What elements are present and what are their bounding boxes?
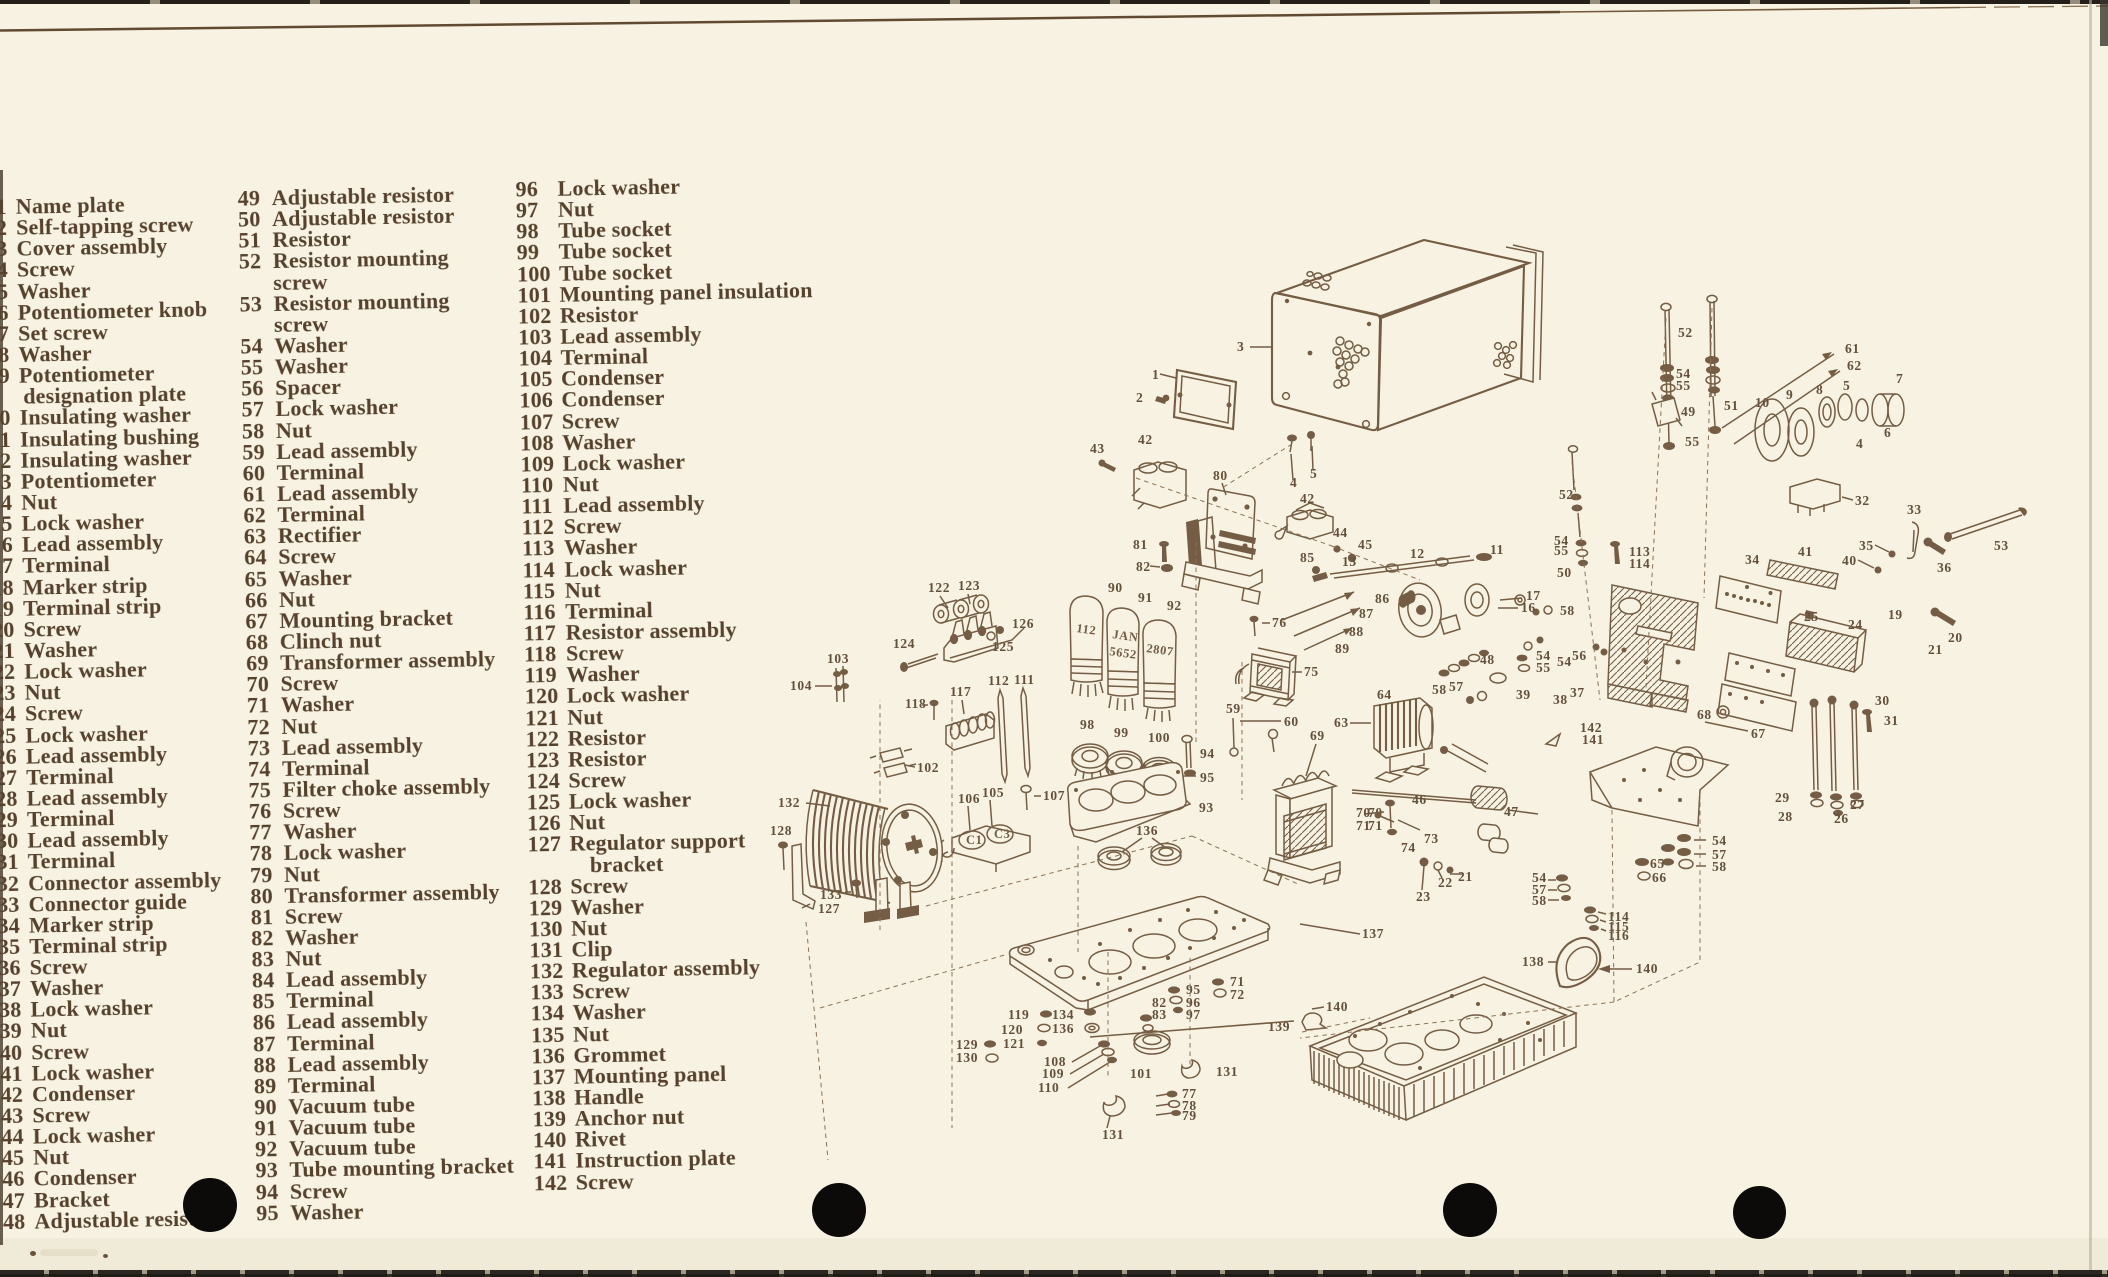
svg-text:64: 64 xyxy=(1377,687,1392,702)
svg-text:75: 75 xyxy=(1304,664,1319,679)
svg-text:12: 12 xyxy=(1410,546,1425,561)
svg-text:5: 5 xyxy=(1310,466,1317,481)
svg-text:2: 2 xyxy=(1136,390,1143,405)
svg-text:46: 46 xyxy=(1412,792,1427,807)
svg-text:60: 60 xyxy=(1284,714,1299,729)
svg-text:112: 112 xyxy=(1076,621,1098,638)
svg-text:141: 141 xyxy=(1582,732,1604,747)
svg-text:49: 49 xyxy=(1681,404,1696,419)
svg-text:16: 16 xyxy=(1521,600,1536,615)
svg-text:55: 55 xyxy=(1685,434,1700,449)
svg-text:110: 110 xyxy=(1038,1080,1059,1095)
svg-text:61: 61 xyxy=(1845,341,1860,356)
svg-text:34: 34 xyxy=(1745,552,1760,567)
svg-text:21: 21 xyxy=(1458,869,1473,884)
svg-text:79: 79 xyxy=(1182,1108,1197,1123)
svg-text:137: 137 xyxy=(1362,926,1384,941)
svg-text:29: 29 xyxy=(1775,790,1790,805)
svg-text:50: 50 xyxy=(1557,565,1572,580)
svg-text:71: 71 xyxy=(1356,818,1371,833)
svg-text:55: 55 xyxy=(1554,543,1569,558)
svg-text:36: 36 xyxy=(1937,560,1952,575)
svg-text:67: 67 xyxy=(1751,726,1766,741)
svg-text:56: 56 xyxy=(1572,648,1587,663)
svg-text:122: 122 xyxy=(928,580,950,595)
svg-text:119: 119 xyxy=(1008,1007,1029,1022)
svg-text:28: 28 xyxy=(1778,809,1793,824)
svg-text:11: 11 xyxy=(1490,542,1504,557)
svg-text:48: 48 xyxy=(1480,652,1495,667)
svg-text:121: 121 xyxy=(1003,1036,1025,1051)
svg-text:123: 123 xyxy=(958,578,980,593)
svg-text:42: 42 xyxy=(1138,432,1153,447)
svg-text:33: 33 xyxy=(1907,502,1922,517)
svg-text:66: 66 xyxy=(1652,870,1667,885)
svg-text:124: 124 xyxy=(893,636,915,651)
svg-text:44: 44 xyxy=(1333,525,1348,540)
svg-text:86: 86 xyxy=(1375,591,1390,606)
svg-text:105: 105 xyxy=(982,785,1004,800)
svg-text:81: 81 xyxy=(1133,537,1148,552)
svg-text:52: 52 xyxy=(1559,487,1574,502)
svg-text:5: 5 xyxy=(1843,378,1850,393)
svg-text:134: 134 xyxy=(1052,1007,1074,1022)
svg-text:39: 39 xyxy=(1516,687,1531,702)
svg-text:4: 4 xyxy=(1290,475,1297,490)
svg-text:42: 42 xyxy=(1300,491,1315,506)
svg-text:136: 136 xyxy=(1136,823,1158,838)
svg-text:1: 1 xyxy=(1152,367,1159,382)
svg-text:6: 6 xyxy=(1884,425,1891,440)
svg-text:27: 27 xyxy=(1850,797,1865,812)
svg-text:68: 68 xyxy=(1697,707,1712,722)
svg-text:112: 112 xyxy=(988,673,1009,688)
svg-text:54: 54 xyxy=(1712,833,1727,848)
svg-text:98: 98 xyxy=(1080,717,1095,732)
svg-text:57: 57 xyxy=(1449,679,1464,694)
svg-text:30: 30 xyxy=(1875,693,1890,708)
svg-text:118: 118 xyxy=(905,696,926,711)
svg-text:73: 73 xyxy=(1424,831,1439,846)
svg-text:59: 59 xyxy=(1226,701,1241,716)
svg-text:90: 90 xyxy=(1108,580,1123,595)
svg-text:13: 13 xyxy=(1342,554,1357,569)
svg-text:74: 74 xyxy=(1401,840,1416,855)
svg-text:114: 114 xyxy=(1629,556,1650,571)
svg-text:87: 87 xyxy=(1359,606,1374,621)
svg-text:41: 41 xyxy=(1798,544,1813,559)
svg-text:52: 52 xyxy=(1678,325,1693,340)
svg-text:65: 65 xyxy=(1650,856,1665,871)
svg-text:20: 20 xyxy=(1948,630,1963,645)
svg-text:9: 9 xyxy=(1786,387,1793,402)
svg-text:94: 94 xyxy=(1200,746,1215,761)
svg-text:89: 89 xyxy=(1335,641,1350,656)
svg-text:138: 138 xyxy=(1522,954,1544,969)
svg-text:C3: C3 xyxy=(994,827,1010,841)
svg-text:69: 69 xyxy=(1310,728,1325,743)
svg-text:43: 43 xyxy=(1090,441,1105,456)
svg-text:4: 4 xyxy=(1856,436,1863,451)
svg-text:21: 21 xyxy=(1928,642,1943,657)
svg-text:85: 85 xyxy=(1300,550,1315,565)
svg-text:131: 131 xyxy=(1102,1127,1124,1142)
svg-text:99: 99 xyxy=(1114,725,1129,740)
svg-text:127: 127 xyxy=(818,901,840,916)
svg-text:104: 104 xyxy=(790,678,812,693)
svg-text:58: 58 xyxy=(1432,682,1447,697)
svg-text:116: 116 xyxy=(1608,928,1629,943)
svg-text:23: 23 xyxy=(1416,889,1431,904)
svg-text:55: 55 xyxy=(1676,378,1691,393)
svg-text:92: 92 xyxy=(1167,598,1182,613)
svg-text:133: 133 xyxy=(820,887,842,902)
svg-text:109: 109 xyxy=(1042,1066,1064,1081)
svg-text:25: 25 xyxy=(1804,609,1819,624)
svg-text:45: 45 xyxy=(1358,537,1373,552)
svg-text:55: 55 xyxy=(1536,660,1551,675)
svg-text:C1: C1 xyxy=(966,833,982,847)
svg-text:63: 63 xyxy=(1334,715,1349,730)
svg-text:22: 22 xyxy=(1438,875,1453,890)
svg-text:91: 91 xyxy=(1138,590,1153,605)
svg-text:72: 72 xyxy=(1230,987,1245,1002)
svg-text:93: 93 xyxy=(1199,800,1214,815)
svg-text:111: 111 xyxy=(1014,672,1035,687)
svg-text:131: 131 xyxy=(1216,1064,1238,1079)
svg-text:53: 53 xyxy=(1994,538,2009,553)
svg-text:130: 130 xyxy=(956,1050,978,1065)
svg-text:103: 103 xyxy=(827,651,849,666)
svg-text:106: 106 xyxy=(958,791,980,806)
svg-text:24: 24 xyxy=(1848,617,1863,632)
svg-text:62: 62 xyxy=(1847,358,1862,373)
svg-text:100: 100 xyxy=(1148,730,1170,745)
svg-text:120: 120 xyxy=(1001,1022,1023,1037)
svg-text:3: 3 xyxy=(1237,339,1244,354)
svg-text:51: 51 xyxy=(1724,398,1739,413)
svg-text:38: 38 xyxy=(1553,692,1568,707)
svg-text:125: 125 xyxy=(992,639,1014,654)
svg-text:95: 95 xyxy=(1200,770,1215,785)
svg-text:128: 128 xyxy=(770,823,792,838)
svg-text:83: 83 xyxy=(1152,1007,1167,1022)
svg-text:88: 88 xyxy=(1349,624,1364,639)
svg-text:26: 26 xyxy=(1834,811,1849,826)
svg-text:76: 76 xyxy=(1272,615,1287,630)
svg-text:47: 47 xyxy=(1504,804,1519,819)
svg-text:132: 132 xyxy=(778,795,800,810)
svg-text:58: 58 xyxy=(1560,603,1575,618)
svg-text:117: 117 xyxy=(950,684,971,699)
svg-text:82: 82 xyxy=(1136,559,1151,574)
svg-text:40: 40 xyxy=(1842,553,1857,568)
svg-text:37: 37 xyxy=(1570,685,1585,700)
svg-text:7: 7 xyxy=(1896,371,1903,386)
svg-text:32: 32 xyxy=(1855,493,1870,508)
svg-text:54: 54 xyxy=(1557,654,1572,669)
svg-text:19: 19 xyxy=(1888,607,1903,622)
svg-text:140: 140 xyxy=(1326,999,1348,1014)
svg-text:102: 102 xyxy=(917,760,939,775)
svg-text:58: 58 xyxy=(1532,893,1547,908)
svg-text:58: 58 xyxy=(1712,859,1727,874)
svg-text:80: 80 xyxy=(1213,468,1228,483)
svg-text:136: 136 xyxy=(1052,1021,1074,1036)
svg-text:97: 97 xyxy=(1186,1007,1201,1022)
svg-text:35: 35 xyxy=(1859,538,1874,553)
svg-text:107: 107 xyxy=(1043,788,1065,803)
svg-text:140: 140 xyxy=(1636,961,1658,976)
svg-text:31: 31 xyxy=(1884,713,1899,728)
svg-text:101: 101 xyxy=(1130,1066,1152,1081)
